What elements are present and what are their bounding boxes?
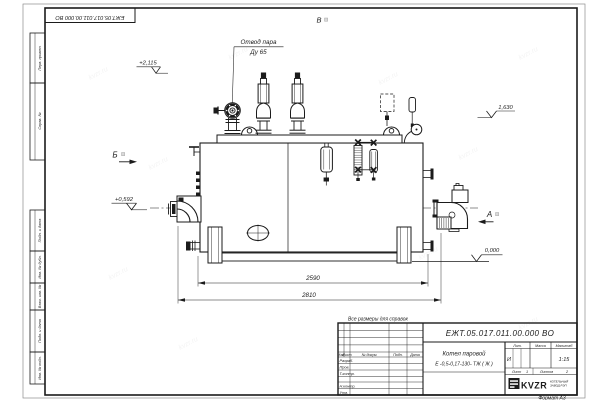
view-v-label: В xyxy=(316,16,321,25)
lifting-lug-left xyxy=(242,127,258,135)
phantom-level-sensor xyxy=(381,94,395,126)
rotated-doc-number-box: ЕЖТ.05.017.011.00.000 ВО xyxy=(45,8,135,23)
drawing-sheet: kvzr.ru kvzr.ru kvzr.ru kvzr.ru kvzr.ru … xyxy=(0,0,600,400)
sheet-no-label: Лист xyxy=(511,370,521,374)
format-note: Формат А3 xyxy=(538,396,566,400)
support-leg-left xyxy=(208,227,222,263)
kvzr-logo: KVZR КОТЕЛЬНЫЙ ЗАВОД РЭП xyxy=(509,378,570,391)
row-razrab: Разраб. xyxy=(340,359,354,363)
wall-stub-fittings xyxy=(196,172,200,197)
margin-stamps: Перв. примен. Справ. № Подп. и дата Инв.… xyxy=(30,33,45,384)
base-skid-rail xyxy=(208,253,411,261)
dim-2810-value: 2810 xyxy=(301,292,316,299)
elevation-pump-axis: +0,592 xyxy=(112,197,148,210)
scale-value: 1:15 xyxy=(559,357,571,363)
view-a-sheet-ref xyxy=(496,213,499,216)
watermark-text: kvzr.ru xyxy=(228,46,250,62)
boiler-shell xyxy=(200,143,423,252)
feed-pump xyxy=(169,196,202,222)
col-list: Лист xyxy=(341,353,351,357)
row-tkontr: Т.контр. xyxy=(340,372,355,376)
lit-header: Лит. xyxy=(512,344,521,348)
stamp-sprav-no: Справ. № xyxy=(38,112,42,129)
rotated-doc-number: ЕЖТ.05.017.011.00.000 ВО xyxy=(55,14,125,20)
boiler-general-view-drawing: kvzr.ru kvzr.ru kvzr.ru kvzr.ru kvzr.ru … xyxy=(0,0,600,400)
safety-valve-1 xyxy=(256,73,272,134)
view-a-label: А xyxy=(486,210,492,219)
watermark-text: kvzr.ru xyxy=(378,71,400,87)
view-v-sheet-ref xyxy=(325,18,328,21)
view-b-label: Б xyxy=(112,151,117,160)
title-block: Все размеры для справок Изм Лист № докум… xyxy=(338,317,577,400)
elevation-pump-axis-value: +0,592 xyxy=(115,197,134,203)
row-nkontr: Н.контр. xyxy=(340,385,356,389)
blowdown-stub xyxy=(186,241,200,252)
burner-control-box xyxy=(452,190,468,203)
elevation-ground-value: 0,000 xyxy=(485,248,500,254)
masshtab-header: Масштаб xyxy=(556,344,574,348)
col-data: Дата xyxy=(409,353,419,357)
watermark-text: kvzr.ru xyxy=(108,266,130,282)
lifting-lug-right xyxy=(384,127,400,135)
title-block-headers: Изм Лист № докум. Подп. Дата xyxy=(338,353,420,357)
watermark-text: kvzr.ru xyxy=(88,66,110,82)
sheets-total-value: 2 xyxy=(565,370,569,374)
view-marker-a: А xyxy=(478,210,499,224)
lit-value: И xyxy=(507,357,511,363)
dim-2590-value: 2590 xyxy=(305,275,320,282)
view-marker-b: Б xyxy=(112,151,137,165)
stamp-inv-dubl: Инв. № дубл. xyxy=(38,255,42,278)
col-podp: Подп. xyxy=(393,353,403,357)
steam-outlet-size-label: Ду 65 xyxy=(249,49,267,56)
steam-outlet-label: Отвод пара xyxy=(241,38,277,46)
stamp-podp-data-1: Подп. и дата xyxy=(38,219,42,243)
watermark-text: kvzr.ru xyxy=(458,146,480,162)
boiler-view: 2590 2810 +2,115 1,630 +0,592 xyxy=(112,16,516,304)
safety-valve-2 xyxy=(290,73,306,134)
view-marker-v: В xyxy=(316,16,327,25)
watermark-text: kvzr.ru xyxy=(148,156,170,172)
elevation-upper-right-value: 1,630 xyxy=(498,105,513,111)
view-b-sheet-ref xyxy=(122,153,125,156)
stamp-inv-podl: Инв. № подл. xyxy=(38,356,42,380)
stamp-podp-data-2: Подп. и дата xyxy=(38,319,42,343)
logo-caption-line2: ЗАВОД РЭП xyxy=(550,384,567,388)
reference-note: Все размеры для справок xyxy=(348,317,409,323)
col-doc: № докум. xyxy=(362,353,378,357)
row-utv: Утв. xyxy=(340,391,349,395)
kvzr-logo-text: KVZR xyxy=(521,381,547,391)
thermowell xyxy=(409,98,416,128)
drain-tap xyxy=(189,147,200,156)
burner-assembly xyxy=(433,184,469,232)
title-doc-number: ЕЖТ.05.017.011.00.000 ВО xyxy=(446,329,554,338)
massa-header: Масса xyxy=(535,344,546,348)
product-name-line2: Е -0,5-0,17-130- ТЖ ( Ж ) xyxy=(435,362,493,368)
watermark-text: kvzr.ru xyxy=(178,336,200,352)
elevation-upper-right: 1,630 xyxy=(478,105,516,118)
watermark-text: kvzr.ru xyxy=(518,46,540,62)
elevation-valve-top-value: +2,115 xyxy=(139,61,157,67)
elevation-valve-top: +2,115 xyxy=(137,61,169,74)
title-block-signature-rows: Разраб. Пров. Т.контр. Н.контр. Утв. xyxy=(340,359,356,395)
rear-stub-upper xyxy=(423,169,434,180)
pressure-gauge xyxy=(404,124,422,143)
support-leg-right xyxy=(397,227,411,263)
row-prov: Пров. xyxy=(340,366,350,370)
stamp-perv-primen: Перв. примен. xyxy=(38,45,42,70)
sheet-no-value: 1 xyxy=(526,370,528,374)
product-name-line1: Котел паровой xyxy=(442,351,486,358)
steam-outlet-valve xyxy=(214,103,241,134)
sheets-total-label: Листов xyxy=(539,370,553,374)
stamp-vzam-inv: Взам. инв. № xyxy=(38,285,42,308)
rear-stub-lower xyxy=(423,241,434,252)
